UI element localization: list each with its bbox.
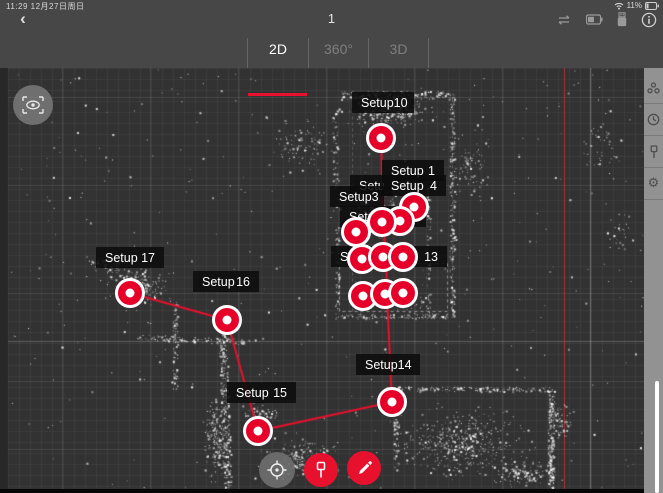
clock-icon xyxy=(647,113,660,126)
sidebar-settings-button[interactable]: ⚙ xyxy=(644,168,663,199)
setup-label-number: 14 xyxy=(398,358,412,372)
label-pointer xyxy=(383,374,397,375)
label-pointer xyxy=(219,291,233,292)
repeat-icon[interactable] xyxy=(556,13,573,27)
pin-icon xyxy=(648,145,660,159)
zoom-slider[interactable] xyxy=(655,381,659,493)
bottom-strip xyxy=(0,489,644,493)
setup-marker[interactable] xyxy=(377,387,407,417)
setup-label-text: Setup xyxy=(391,179,424,193)
setup-label: Setup16 xyxy=(193,271,259,292)
setup-marker[interactable] xyxy=(341,217,371,247)
battery-status-icon[interactable] xyxy=(586,14,603,25)
setup-label-text: Setup xyxy=(365,358,398,372)
right-sidebar: ⚙ xyxy=(644,68,663,493)
setup-label-number: 17 xyxy=(141,251,155,265)
setup-marker[interactable] xyxy=(115,278,145,308)
setup-label-number: 15 xyxy=(273,386,287,400)
setup-label: Setup15 xyxy=(227,382,296,403)
setup-label: Setup17 xyxy=(96,247,164,268)
locate-button[interactable] xyxy=(259,452,295,488)
setup-label: Setup3 xyxy=(330,186,384,207)
info-icon[interactable] xyxy=(641,12,657,28)
usb-drive-icon[interactable] xyxy=(616,12,628,27)
sidebar-registration-button[interactable] xyxy=(644,72,663,103)
setup-label-text: Setup xyxy=(105,251,138,265)
tab-separator xyxy=(428,38,429,68)
setup-marker[interactable] xyxy=(388,278,418,308)
app-window: 11:29 12月27日周日 11% ‹ 1 2D 360° 3D xyxy=(0,0,663,493)
tab-3d[interactable]: 3D xyxy=(369,30,428,68)
preview-eye-button[interactable] xyxy=(13,85,53,125)
registration-cluster-icon xyxy=(647,82,660,94)
label-pointer xyxy=(120,267,134,268)
setup-label-text: Setup xyxy=(339,190,372,204)
active-tab-underline xyxy=(248,93,307,96)
setup-label-number: 16 xyxy=(236,275,250,289)
setup-label: Setup14 xyxy=(356,354,420,375)
label-pointer xyxy=(376,112,390,113)
tab-bar: 2D 360° 3D xyxy=(0,30,663,68)
setup-label-number: 4 xyxy=(430,179,437,193)
setup-label-number: 13 xyxy=(424,250,438,264)
setup-marker[interactable] xyxy=(243,416,273,446)
map-canvas[interactable] xyxy=(0,68,644,489)
setup-label-text: Setup xyxy=(236,386,269,400)
setup-marker[interactable] xyxy=(212,305,242,335)
gear-icon: ⚙ xyxy=(648,177,660,190)
sidebar-divider xyxy=(644,199,663,200)
tab-360[interactable]: 360° xyxy=(309,30,368,68)
setup-label: Setup10 xyxy=(352,92,414,113)
sidebar-pin-button[interactable] xyxy=(644,136,663,167)
pencil-icon xyxy=(356,460,373,477)
setup-label-text: Setup xyxy=(361,96,394,110)
top-bar: 11:29 12月27日周日 11% ‹ 1 xyxy=(0,0,663,30)
toolbar-icons xyxy=(556,9,657,30)
setup-marker[interactable] xyxy=(388,242,418,272)
label-pointer xyxy=(251,402,265,403)
locate-crosshair-icon xyxy=(266,459,288,481)
tab-2d[interactable]: 2D xyxy=(248,30,308,68)
sidebar-clock-button[interactable] xyxy=(644,104,663,135)
preview-eye-icon xyxy=(21,95,45,115)
setup-label-number: 10 xyxy=(394,96,408,110)
setup-marker[interactable] xyxy=(366,123,396,153)
measure-button[interactable] xyxy=(347,451,381,485)
setup-label-text: Setup xyxy=(202,275,235,289)
setup-marker[interactable] xyxy=(367,207,397,237)
setup-label-number: 3 xyxy=(372,190,379,204)
add-setup-button[interactable] xyxy=(304,453,338,487)
toolbar: ‹ 1 xyxy=(0,9,663,30)
pin-marker-icon xyxy=(313,461,329,479)
